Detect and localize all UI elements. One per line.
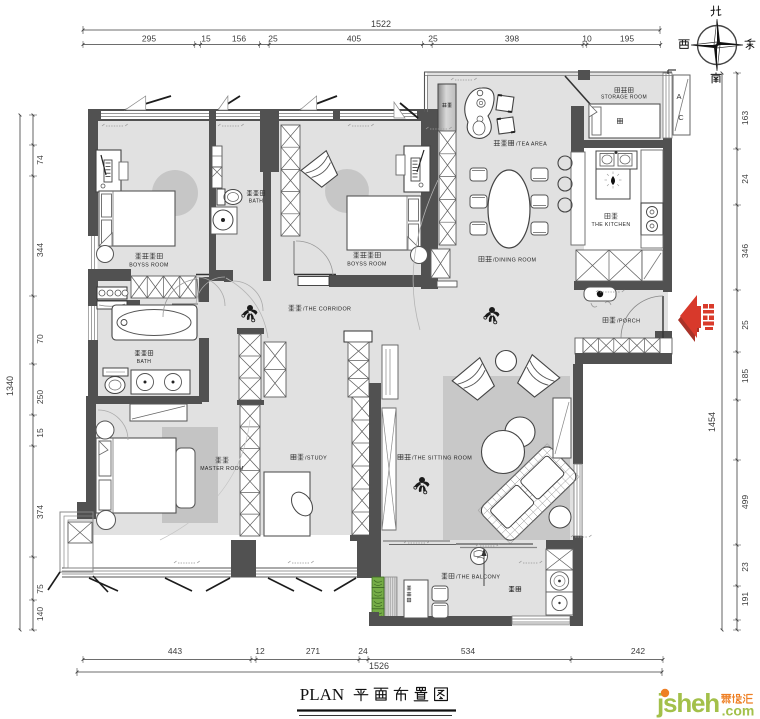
svg-text:140: 140 bbox=[35, 607, 45, 621]
svg-text:23: 23 bbox=[740, 562, 750, 572]
svg-text:/THE SITTING ROOM: /THE SITTING ROOM bbox=[412, 456, 472, 462]
svg-text:/THE CORRIDOR: /THE CORRIDOR bbox=[303, 307, 351, 313]
svg-text:163: 163 bbox=[740, 111, 750, 125]
svg-text:185: 185 bbox=[740, 369, 750, 383]
svg-text:346: 346 bbox=[740, 244, 750, 258]
svg-text:/THE BALCONY: /THE BALCONY bbox=[456, 575, 500, 581]
svg-text:10: 10 bbox=[582, 34, 592, 44]
svg-text:405: 405 bbox=[347, 34, 361, 44]
svg-text:195: 195 bbox=[620, 34, 634, 44]
svg-text:24: 24 bbox=[358, 646, 368, 656]
svg-text:374: 374 bbox=[35, 505, 45, 519]
svg-text:156: 156 bbox=[232, 34, 246, 44]
svg-text:BOYSS ROOM: BOYSS ROOM bbox=[347, 262, 386, 268]
svg-text:191: 191 bbox=[740, 592, 750, 606]
svg-text:74: 74 bbox=[35, 155, 45, 165]
svg-text:398: 398 bbox=[505, 34, 519, 44]
svg-text:12: 12 bbox=[255, 646, 265, 656]
svg-text:15: 15 bbox=[201, 34, 211, 44]
svg-text:70: 70 bbox=[35, 334, 45, 344]
svg-text:BATH: BATH bbox=[249, 199, 264, 205]
svg-text:BOYSS ROOM: BOYSS ROOM bbox=[129, 263, 168, 269]
svg-text:25: 25 bbox=[268, 34, 278, 44]
svg-text:75: 75 bbox=[35, 584, 45, 594]
svg-text:/TEA AREA: /TEA AREA bbox=[516, 142, 547, 148]
svg-text:534: 534 bbox=[461, 646, 475, 656]
svg-text:A: A bbox=[676, 92, 681, 101]
svg-text:295: 295 bbox=[142, 34, 156, 44]
svg-text:1522: 1522 bbox=[371, 19, 391, 29]
svg-text:MASTER ROOM: MASTER ROOM bbox=[200, 466, 244, 472]
svg-text:250: 250 bbox=[35, 390, 45, 404]
svg-text:242: 242 bbox=[631, 646, 645, 656]
svg-text:443: 443 bbox=[168, 646, 182, 656]
svg-text:/PORCH: /PORCH bbox=[617, 319, 640, 325]
svg-text:1526: 1526 bbox=[369, 661, 389, 671]
svg-text:25: 25 bbox=[428, 34, 438, 44]
svg-text:PLAN: PLAN bbox=[300, 685, 344, 704]
svg-text:499: 499 bbox=[740, 495, 750, 509]
svg-text:25: 25 bbox=[740, 320, 750, 330]
svg-text:1340: 1340 bbox=[5, 376, 15, 396]
svg-text:15: 15 bbox=[35, 428, 45, 438]
svg-text:/STUDY: /STUDY bbox=[305, 456, 327, 462]
svg-text:THE KITCHEN: THE KITCHEN bbox=[592, 222, 631, 228]
svg-text:.com: .com bbox=[722, 703, 755, 719]
svg-text:1454: 1454 bbox=[707, 412, 717, 432]
svg-text:BATH: BATH bbox=[137, 359, 152, 365]
svg-text:STORAGE ROOM: STORAGE ROOM bbox=[601, 95, 647, 101]
svg-text:/DINING ROOM: /DINING ROOM bbox=[493, 258, 537, 264]
svg-text:271: 271 bbox=[306, 646, 320, 656]
svg-text:C: C bbox=[678, 113, 684, 122]
svg-text:344: 344 bbox=[35, 243, 45, 257]
svg-text:24: 24 bbox=[740, 174, 750, 184]
